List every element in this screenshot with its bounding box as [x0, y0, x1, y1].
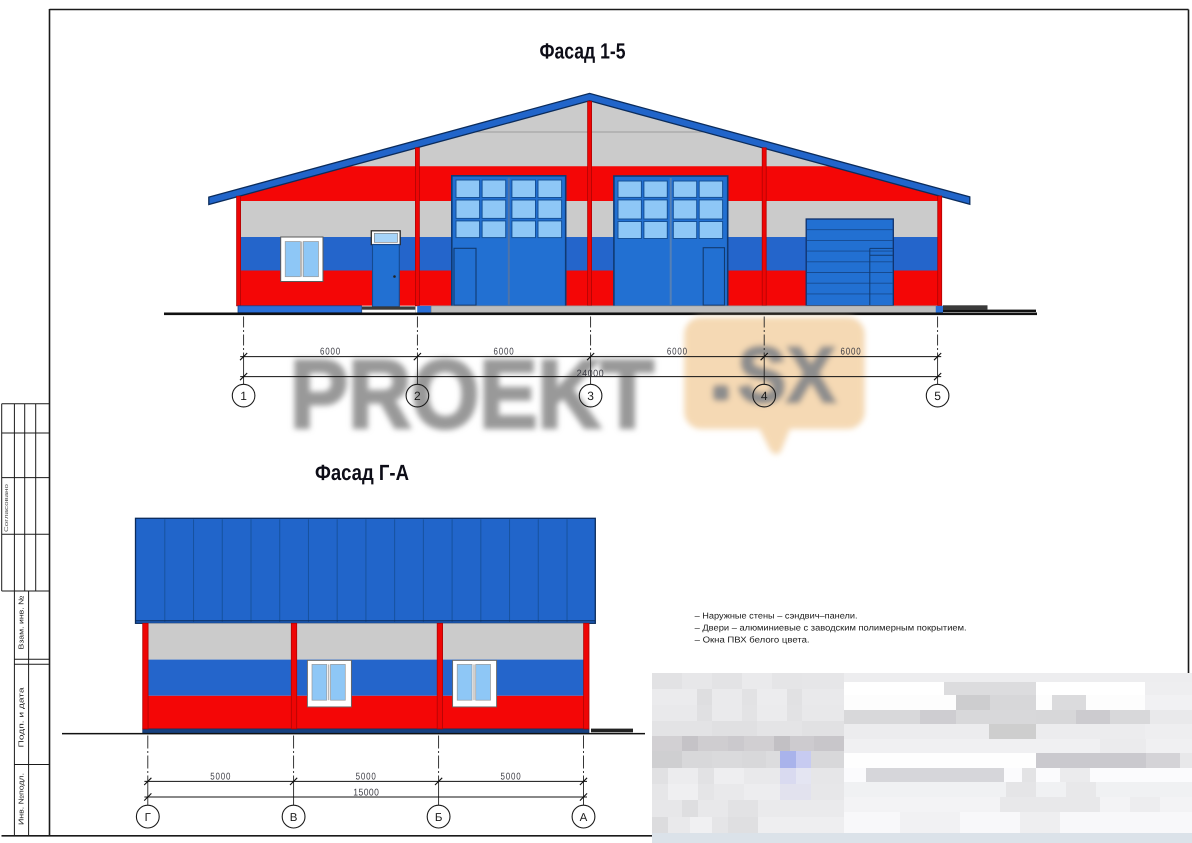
- svg-text:Фасад 1-5: Фасад 1-5: [540, 39, 626, 64]
- svg-text:А: А: [580, 812, 588, 824]
- svg-text:2: 2: [414, 389, 421, 403]
- svg-text:Б: Б: [435, 812, 443, 824]
- svg-text:Взам. инв. №: Взам. инв. №: [17, 595, 26, 649]
- svg-text:Инв. №подл.: Инв. №подл.: [17, 773, 26, 825]
- svg-text:3: 3: [587, 389, 594, 403]
- svg-text:– Окна ПВХ белого цвета.: – Окна ПВХ белого цвета.: [695, 635, 810, 645]
- svg-text:Согласовано: Согласовано: [4, 484, 10, 532]
- svg-text:24000: 24000: [577, 368, 605, 379]
- svg-text:SX: SX: [738, 330, 836, 419]
- svg-text:В: В: [290, 812, 298, 824]
- svg-text:15000: 15000: [353, 788, 379, 799]
- svg-text:6000: 6000: [494, 346, 515, 357]
- svg-text:Подп. и дата: Подп. и дата: [17, 688, 26, 748]
- svg-text:5000: 5000: [210, 771, 231, 782]
- svg-text:– Наружные стены – сэндвич–пан: – Наружные стены – сэндвич–панели.: [695, 610, 858, 620]
- svg-text:5: 5: [934, 389, 941, 403]
- svg-text:5000: 5000: [501, 771, 522, 782]
- svg-text:5000: 5000: [356, 771, 377, 782]
- svg-text:6000: 6000: [667, 346, 688, 357]
- svg-text:Фасад Г-А: Фасад Г-А: [315, 460, 409, 485]
- svg-text:1: 1: [240, 389, 247, 403]
- svg-text:4: 4: [761, 389, 768, 403]
- svg-text:6000: 6000: [320, 346, 341, 357]
- svg-text:Г: Г: [145, 812, 152, 824]
- svg-text:– Двери – алюминиевые с заводс: – Двери – алюминиевые с заводским полиме…: [695, 623, 967, 633]
- svg-text:6000: 6000: [841, 346, 862, 357]
- svg-text:PROEKT: PROEKT: [290, 340, 654, 449]
